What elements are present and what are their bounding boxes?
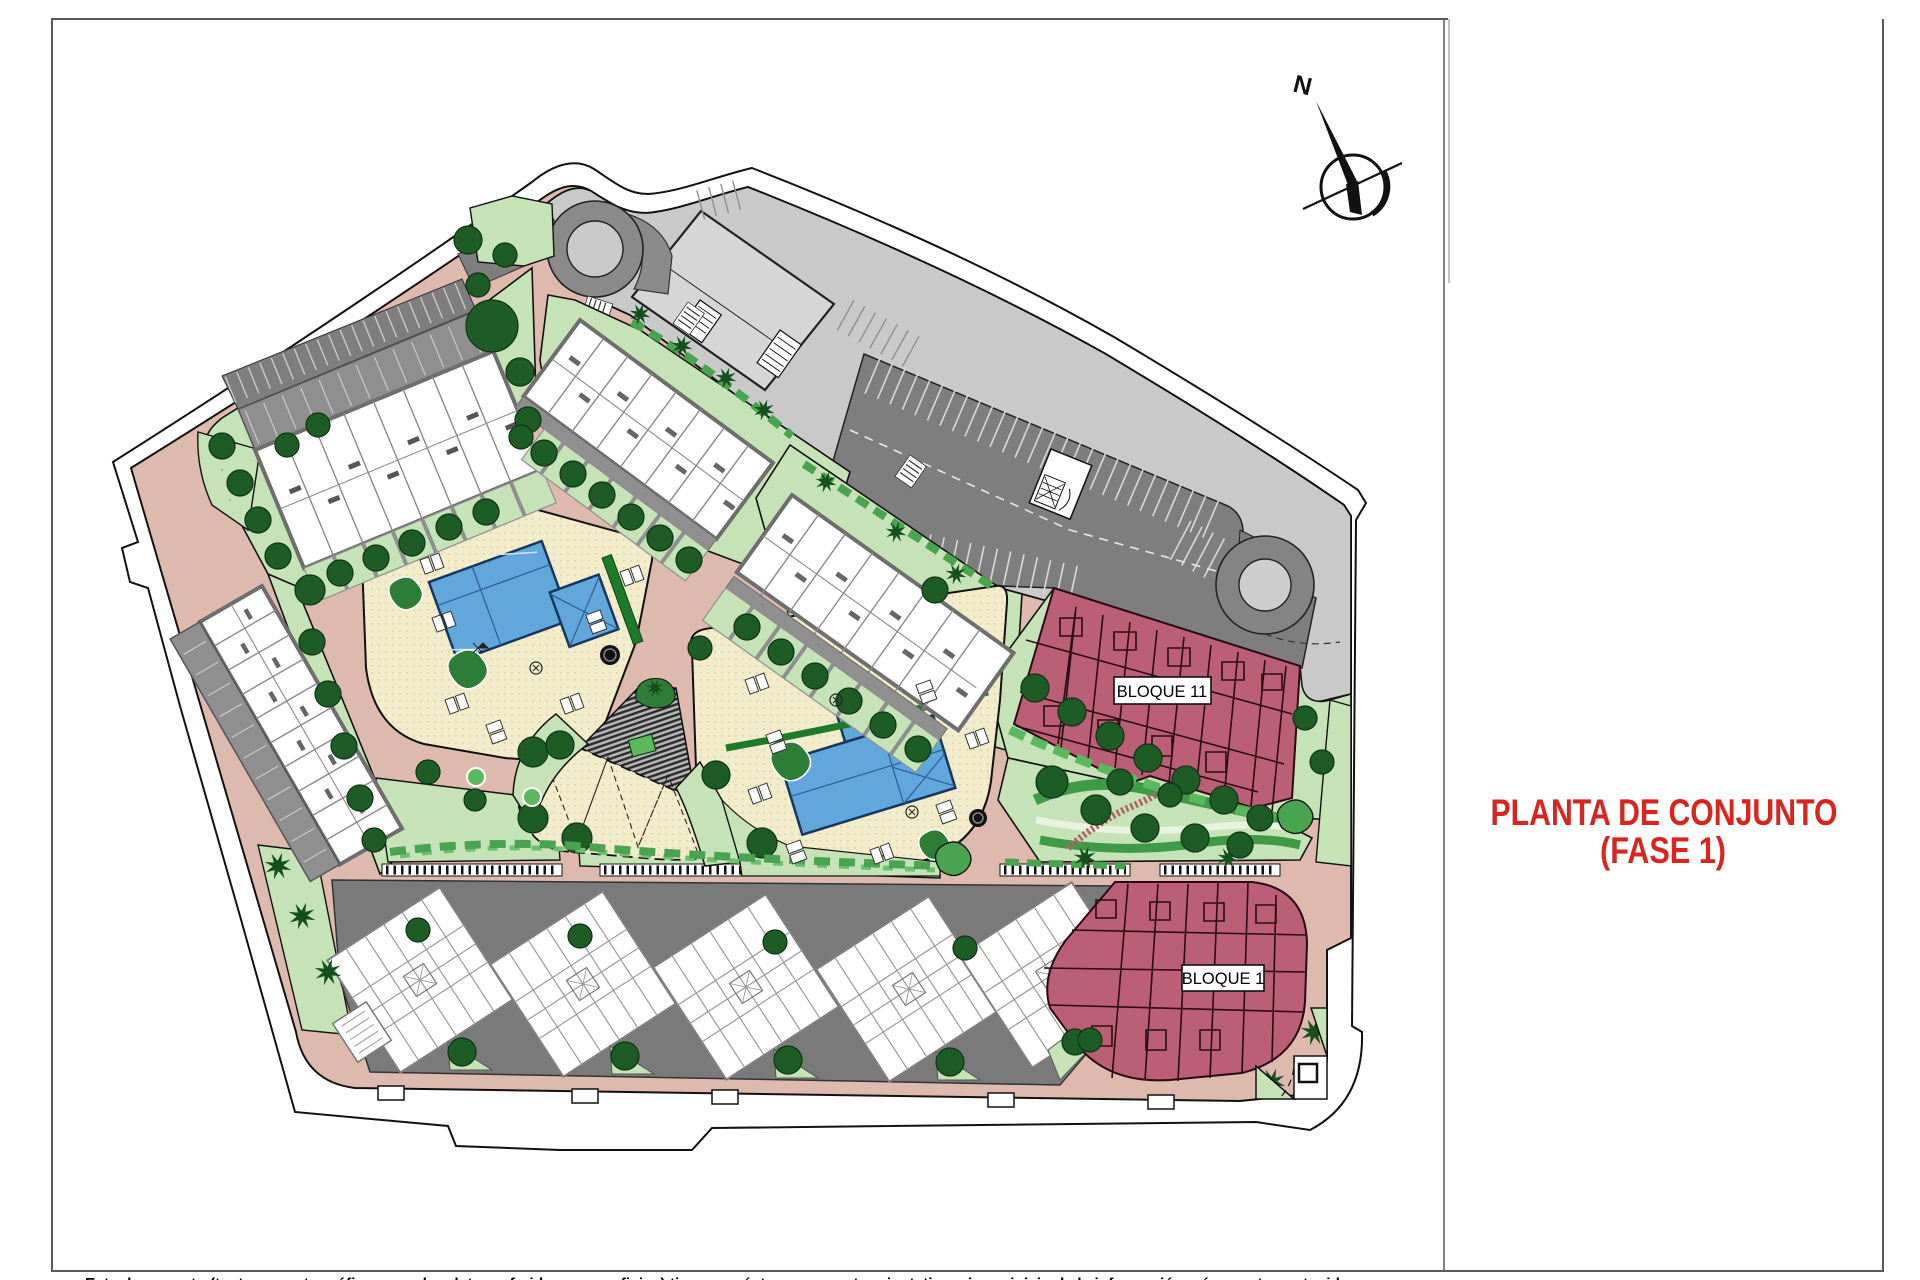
svg-text:BLOQUE 1: BLOQUE 1 — [1182, 970, 1265, 988]
svg-text:BLOQUE 11: BLOQUE 11 — [1117, 683, 1207, 701]
svg-text:PLANTA DE CONJUNTO: PLANTA DE CONJUNTO — [1491, 792, 1838, 833]
svg-text:(FASE 1): (FASE 1) — [1600, 830, 1726, 871]
svg-text:Este documento (tanto en parte: Este documento (tanto en parte gráfica c… — [85, 1276, 1349, 1280]
